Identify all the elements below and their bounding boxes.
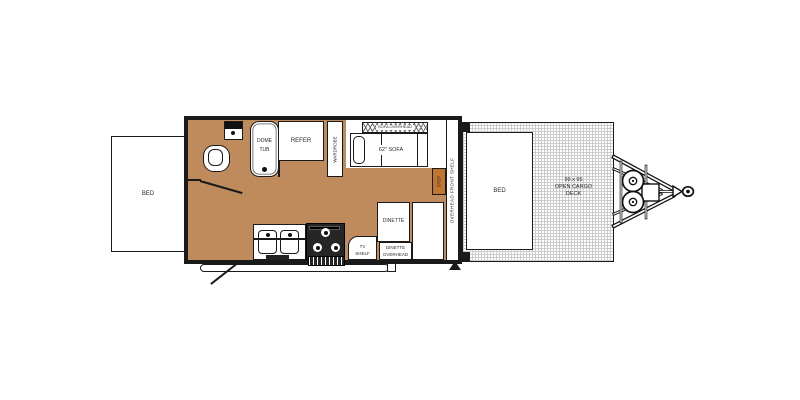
bathroom-sink-drain [231,131,235,135]
deck-corner-block-bottom [462,252,470,262]
dinette-overhead-cabinet: DINETTE OVERHEAD [379,242,412,260]
sofa-overhead-label: SOFA OVERHEAD [376,125,414,130]
dinette-overhead-label-2: OVERHEAD [380,252,411,259]
cargo-deck-label-1: 99 x 95 [532,177,615,184]
oven-front-vent [308,256,345,266]
refer-label: REFER [291,138,311,145]
sofa-label: 62" SOFA [365,145,417,155]
rear-bed-label: BED [142,191,154,198]
hitch-coupler-icon [683,187,694,196]
awning-bracket [387,263,396,272]
sink-basin-right [280,230,299,254]
dinette-overhead-label-1: DINETTE [380,244,411,251]
range-stove-icon [306,223,345,260]
dome-tub-label-1: DOME [251,138,278,146]
stove-burner-1 [321,228,330,237]
cargo-deck-label-2: OPEN CARGO [532,184,615,191]
sofa-armrest [353,136,365,164]
tongue-frame [610,140,702,246]
dinette-label: DINETTE [383,219,404,225]
kitchen-counter [253,224,306,260]
dinette-booth: DINETTE [377,202,410,242]
toilet-icon [203,145,230,172]
sink-basin-left [258,230,277,254]
step-label: STEP [436,176,441,188]
wardrobe-label: WARDROBE [333,136,338,162]
toilet-bowl [208,149,223,166]
dinette-bench [412,202,444,260]
stove-burner-3 [331,243,340,252]
front-shelf-label: OVERHEAD FRONT SHELF [450,157,455,223]
deck-corner-block-top [462,122,470,132]
sofa: 62" SOFA [350,133,428,167]
stabilizer-jack-icon [449,261,461,270]
dome-tub-label-2: TUB [251,147,278,155]
tv-shelf-label-1: TV [349,243,376,250]
entry-step: STEP [432,168,446,195]
bathroom-sink-icon [224,121,243,140]
dome-tub: DOME TUB [250,121,279,177]
cargo-deck-label: 99 x 95 OPEN CARGO DECK [532,177,615,198]
bathroom-sink-ledge [225,122,242,129]
battery-box [642,184,659,201]
sofa-overhead-cabinet: SOFA OVERHEAD [362,122,428,133]
sink-faucet-right [288,233,292,237]
propane-tanks-icon [623,171,644,213]
bathroom-door [200,180,243,194]
sink-faucet-left [266,233,270,237]
tub-faucet-icon [262,167,267,172]
tv-shelf-label-2: SHELF [349,250,376,257]
front-deck-bed: BED [466,132,533,250]
sink-drawer [266,255,289,260]
rear-fold-out-bed: BED [111,136,185,252]
wardrobe-cabinet: WARDROBE [327,121,343,177]
trailer-body: DOME TUB REFER WARDROBE SOFA OVERHEAD [184,116,462,264]
stove-burner-2 [313,243,322,252]
coupler-neck [673,186,682,197]
overhead-front-shelf: OVERHEAD FRONT SHELF [446,120,459,260]
tv-shelf: TV SHELF [348,236,377,260]
front-bed-label: BED [493,188,505,195]
floorplan-canvas: BED DOME TUB REFER WARDROBE [0,0,800,400]
sofa-cushion-line-2 [417,134,418,166]
refrigerator: REFER [278,121,324,161]
cargo-deck-label-3: DECK [532,191,615,198]
